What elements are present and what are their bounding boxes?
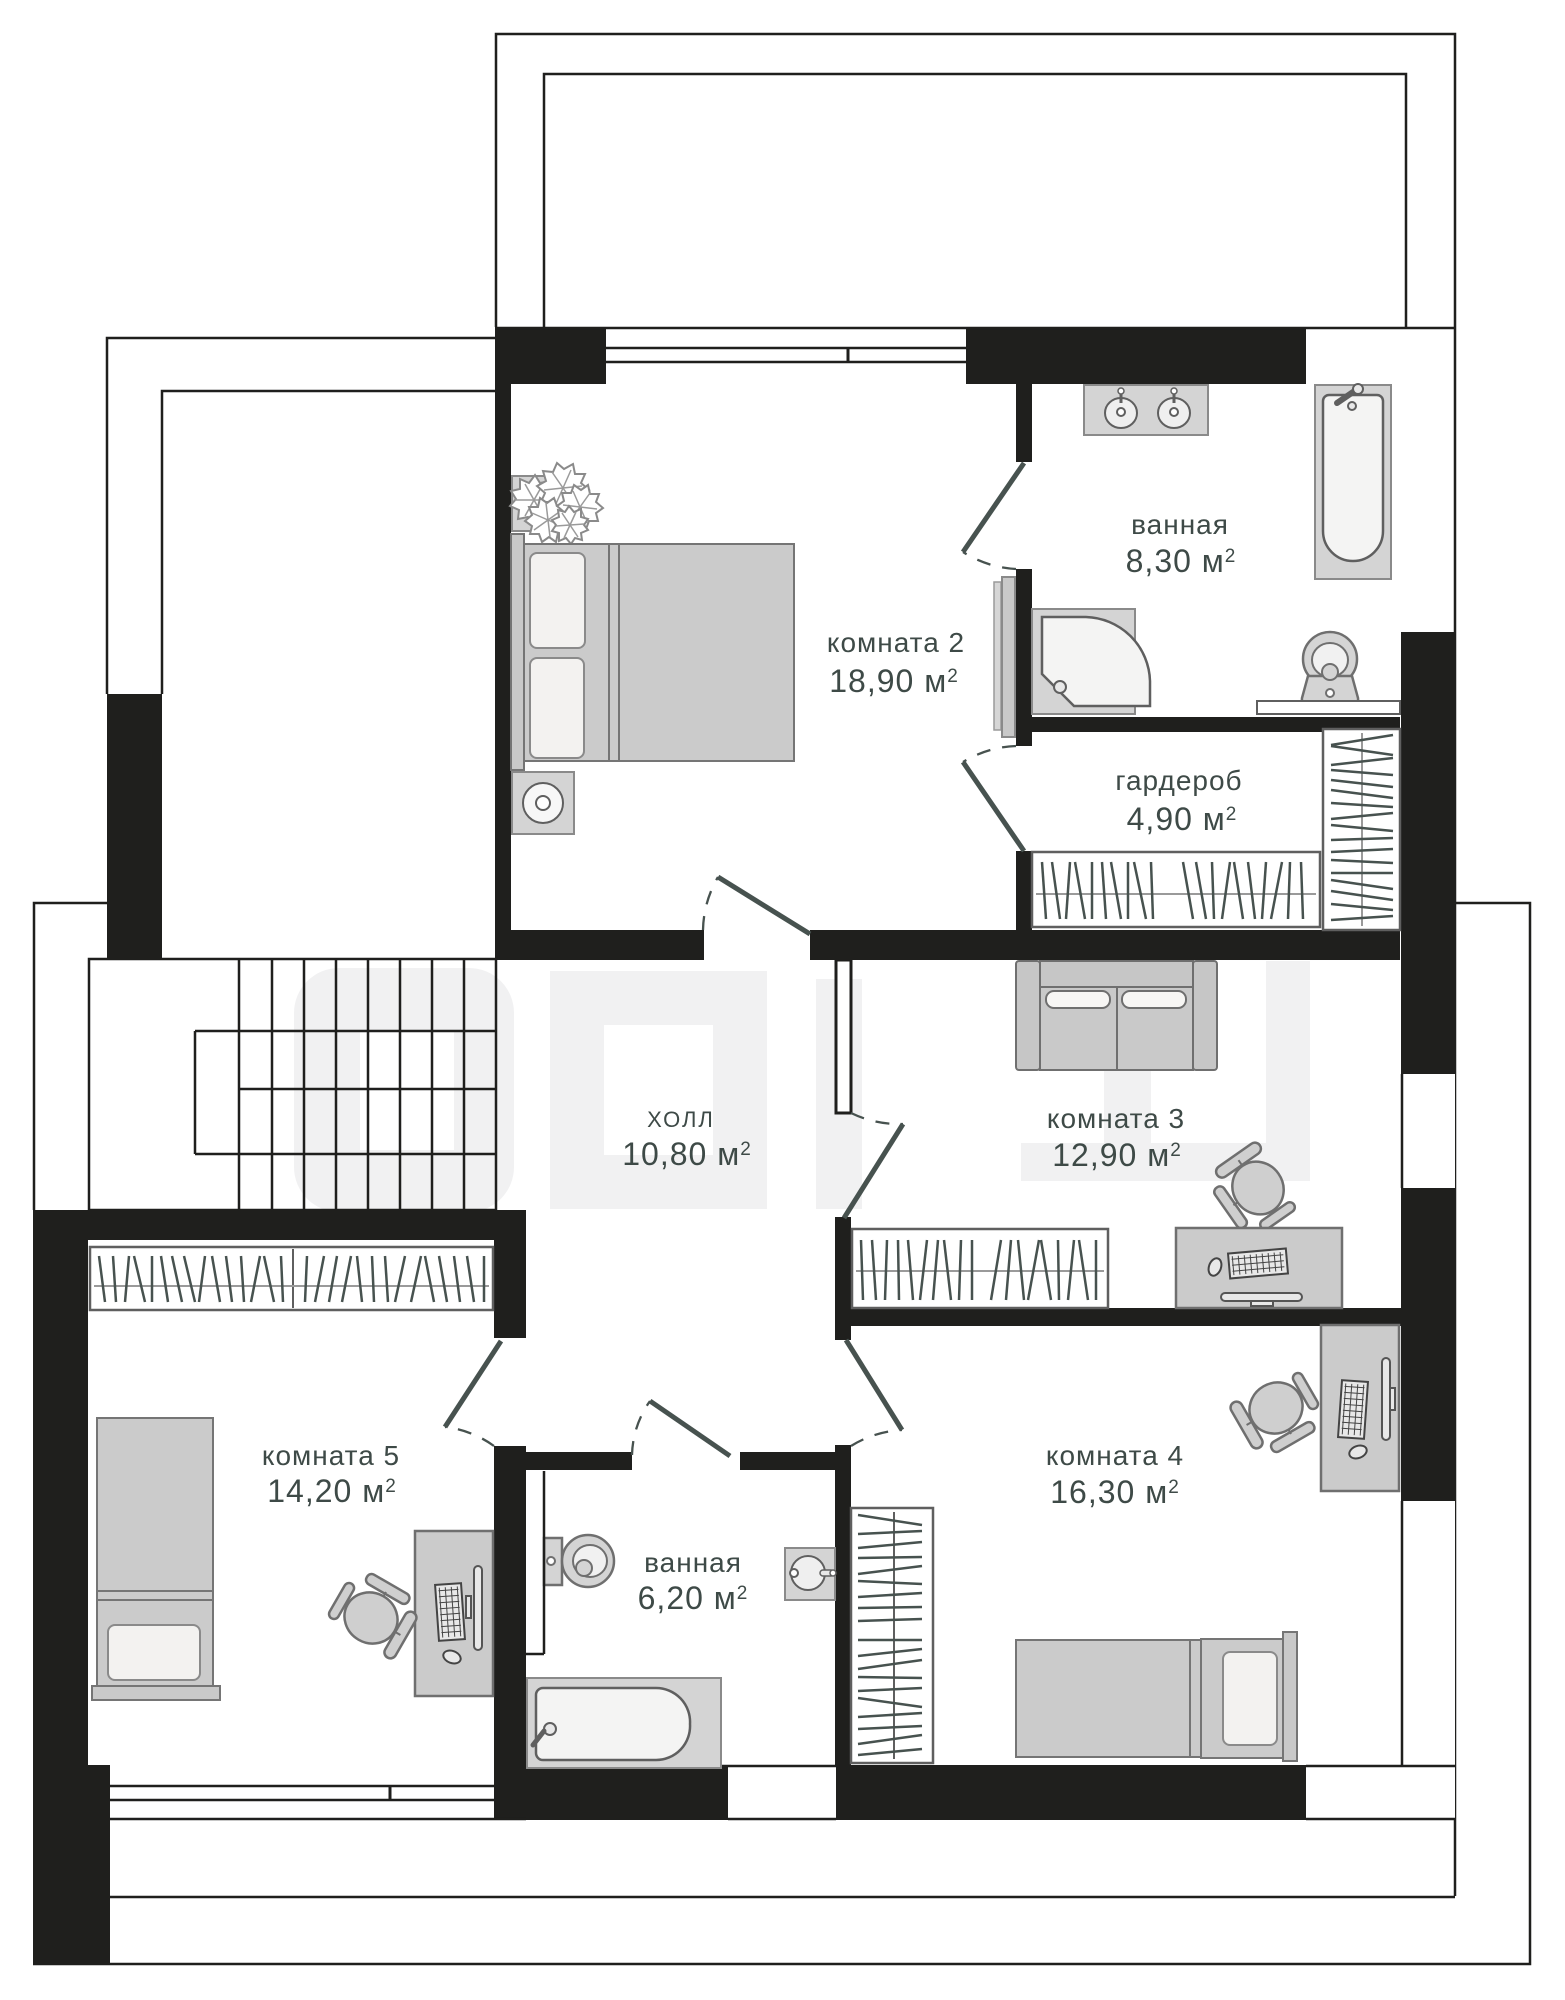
svg-text:ХОЛЛ: ХОЛЛ (647, 1107, 715, 1132)
svg-text:14,20 м2: 14,20 м2 (267, 1473, 397, 1509)
svg-text:ванная: ванная (1131, 509, 1229, 540)
svg-text:комната 2: комната 2 (827, 627, 965, 658)
svg-text:12,90 м2: 12,90 м2 (1052, 1137, 1182, 1173)
svg-text:комната 4: комната 4 (1046, 1440, 1184, 1471)
svg-text:гардероб: гардероб (1115, 765, 1242, 796)
svg-text:комната 3: комната 3 (1047, 1103, 1185, 1134)
svg-text:ванная: ванная (644, 1547, 742, 1578)
svg-text:16,30 м2: 16,30 м2 (1050, 1474, 1180, 1510)
svg-text:6,20 м2: 6,20 м2 (638, 1580, 749, 1616)
svg-text:4,90 м2: 4,90 м2 (1127, 801, 1238, 837)
svg-text:18,90 м2: 18,90 м2 (829, 663, 959, 699)
svg-text:комната 5: комната 5 (262, 1440, 400, 1471)
svg-text:8,30 м2: 8,30 м2 (1126, 543, 1237, 579)
svg-text:10,80 м2: 10,80 м2 (622, 1136, 752, 1172)
